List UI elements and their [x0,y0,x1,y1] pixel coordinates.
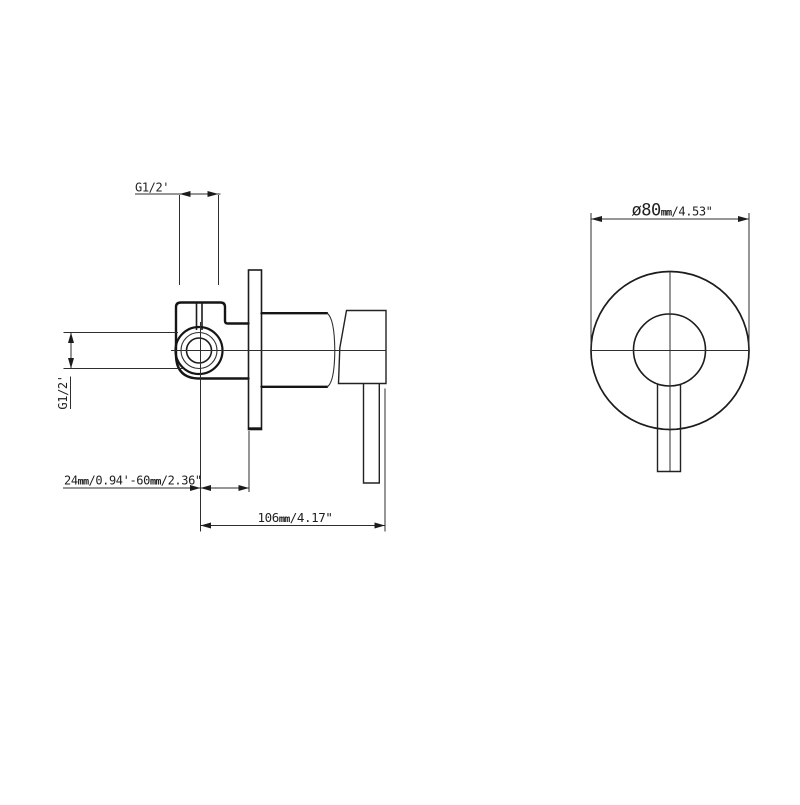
front-handle-lever [658,385,681,472]
drawing-page: G1/2' G1/2' 24mm/0.94'-60mm/2.36" [0,0,800,800]
dim-depth-range-label: 24mm/0.94'-60mm/2.36" [64,474,202,488]
side-view: G1/2' G1/2' 24mm/0.94'-60mm/2.36" [56,181,386,532]
dim-top-thread-label: G1/2' [135,181,169,195]
dim-left-thread-label: G1/2' [56,375,70,409]
dim-depth-range: 24mm/0.94'-60mm/2.36" [63,431,249,492]
dim-top-thread: G1/2' [135,181,221,286]
dim-plate-diameter-label: ø80mm/4.53" [631,201,712,221]
technical-drawing-canvas: G1/2' G1/2' 24mm/0.94'-60mm/2.36" [0,0,800,800]
dim-total-depth-label: 106mm/4.17" [258,510,333,525]
pipe-bore-lines [197,303,203,331]
dim-total-depth: 106mm/4.17" [201,389,386,532]
dim-left-thread: G1/2' [56,333,184,410]
valve-body-outline [176,303,249,379]
front-view: ø80mm/4.53" [591,201,749,472]
wall-plate-side [249,270,262,430]
handle-cap-side [339,311,387,384]
handle-lever-side [364,384,380,484]
